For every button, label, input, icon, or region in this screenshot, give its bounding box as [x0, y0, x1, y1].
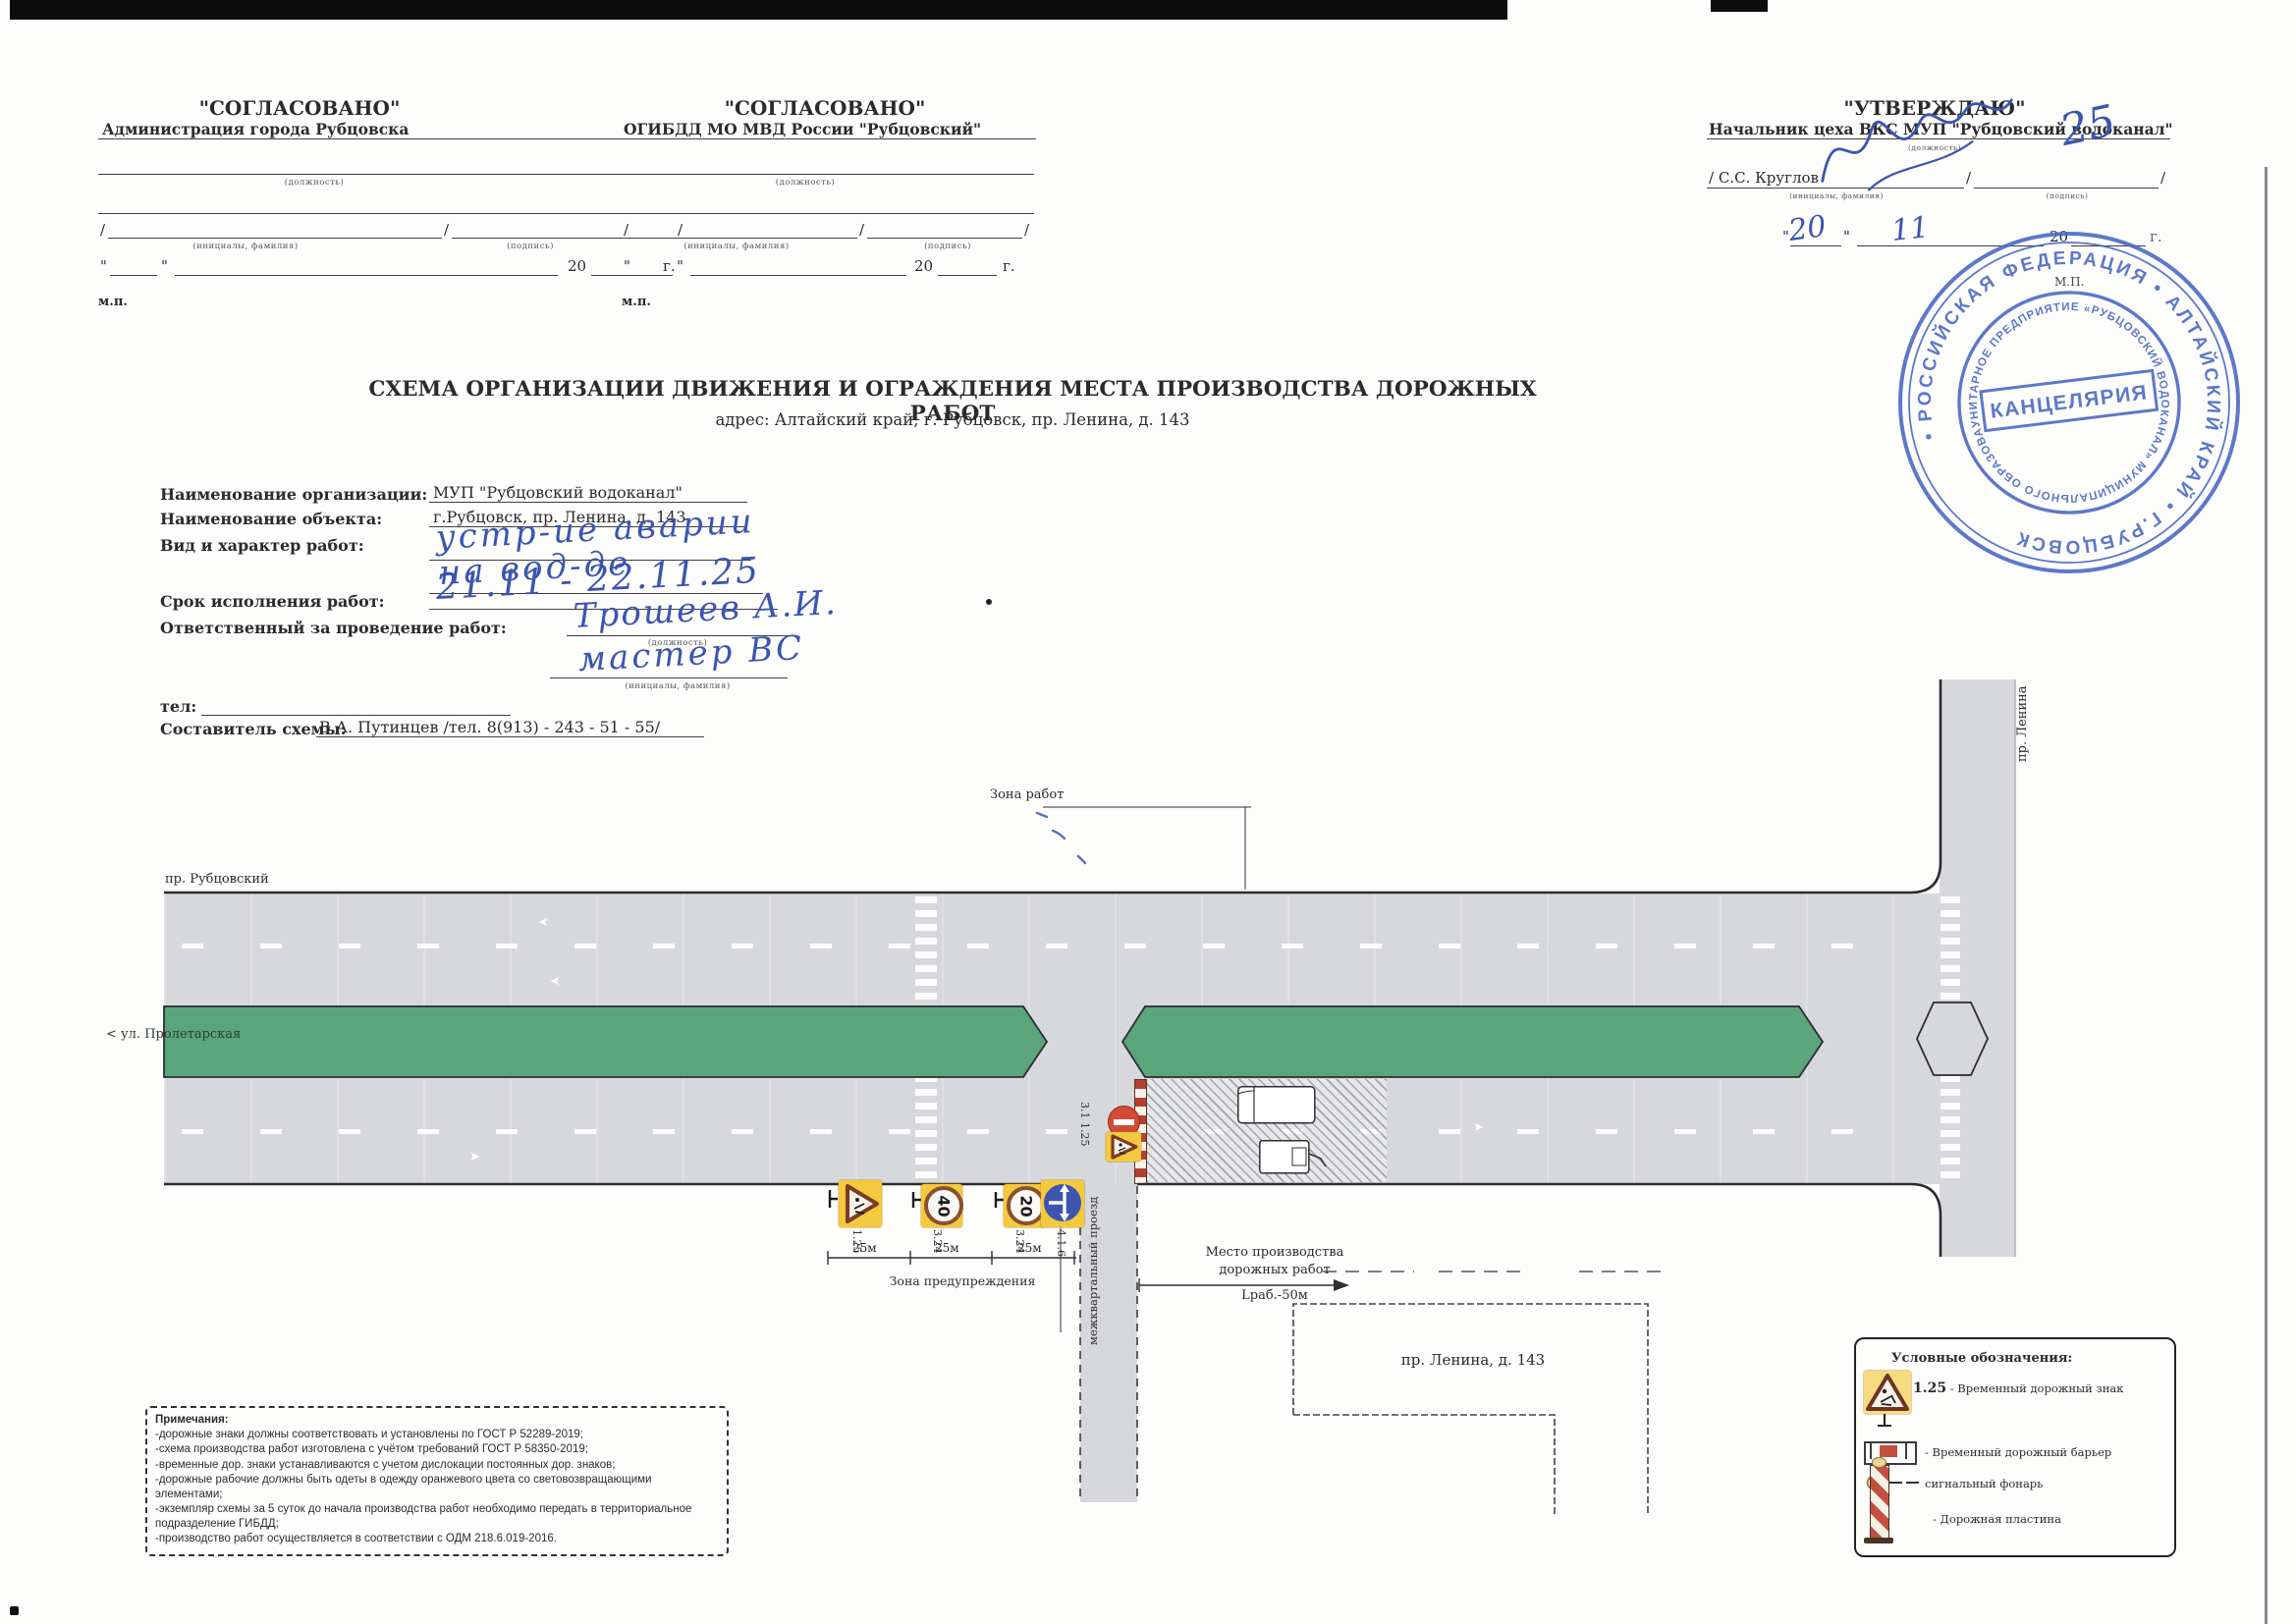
median-island-hexagon	[1917, 1002, 1988, 1075]
street-label-rubtsovsky: пр. Рубцовский	[165, 872, 269, 887]
pen-scribble	[1037, 813, 1085, 863]
dim-25m-3: 25м	[1017, 1241, 1042, 1255]
road-top-edge	[164, 679, 1941, 893]
roadworks-triangle-icon	[1106, 1132, 1141, 1162]
legend-item1-code: 1.25	[1913, 1380, 1946, 1396]
notes-line: -временные дор. знаки устанавливаются с …	[155, 1458, 719, 1473]
notes-line: -экземпляр схемы за 5 суток до начала пр…	[155, 1502, 719, 1532]
no-entry-bar	[1114, 1119, 1134, 1125]
workzone-label: Зона работ	[990, 787, 1064, 802]
notes-line: -дорожные рабочие должны быть одеты в од…	[155, 1473, 719, 1502]
legend-item1-text: - Временный дорожный знак	[1950, 1381, 2124, 1395]
street-label-proletarskaya: < ул. Пролетарская	[106, 1027, 241, 1042]
workplace-length-label: Lраб.-50м	[1196, 1288, 1353, 1303]
lane-arrow-east-1: ➤	[469, 1153, 480, 1163]
building-label: пр. Ленина, д. 143	[1375, 1351, 1571, 1369]
notes-line: -производство работ осуществляется в соо…	[155, 1532, 719, 1546]
legend-post-cap	[1872, 1457, 1886, 1468]
driveway-label: межквартальный проезд	[1086, 1190, 1100, 1345]
lane-arrow-west-2: ➤	[550, 975, 561, 985]
direction-sign-icon	[1041, 1180, 1084, 1227]
lane-arrow-west-1: ➤	[538, 916, 549, 926]
legend-item3-text: сигнальный фонарь	[1925, 1477, 2043, 1490]
workplace-label-line1: Место производства	[1196, 1245, 1353, 1260]
notes-line: -дорожные знаки должны соответствовать и…	[155, 1428, 719, 1442]
roadworks-triangle-icon	[839, 1180, 882, 1227]
dim-25m-1: 25м	[852, 1241, 877, 1255]
sign-road-ref-label: 3.1 1.25	[1078, 1102, 1091, 1146]
legend-item4-text: - Дорожная пластина	[1933, 1512, 2061, 1526]
warning-zone-label: Зона предупреждения	[884, 1273, 1041, 1288]
notes-box: Примечания: -дорожные знаки должны соотв…	[145, 1406, 729, 1556]
scanned-document-page: "СОГЛАСОВАНО" Администрация города Рубцо…	[0, 0, 2296, 1624]
legend-post-icon	[1870, 1465, 1889, 1540]
building-outline	[1293, 1304, 1648, 1517]
sign-speed-20: 20	[1007, 1186, 1046, 1225]
median-west	[164, 1006, 1047, 1077]
work-excavator	[1260, 1141, 1326, 1173]
notes-title: Примечания:	[155, 1413, 719, 1428]
workzone-leader	[1043, 807, 1251, 890]
speed-40-value: 40	[934, 1195, 953, 1217]
sign4-ref-label: 4.1.6	[1055, 1229, 1067, 1257]
work-truck	[1238, 1087, 1315, 1123]
sign-speed-40: 40	[924, 1186, 963, 1225]
legend-post-base	[1864, 1538, 1893, 1543]
speed-20-value: 20	[1016, 1195, 1035, 1217]
sign-roadworks-on-road	[1106, 1132, 1141, 1162]
legend-title: Условные обозначения:	[1891, 1351, 2072, 1366]
sign-roadworks-1-25	[839, 1180, 882, 1227]
lane-arrow-east-2: ➤	[1473, 1123, 1484, 1133]
street-label-lenina: пр. Ленина	[2015, 677, 2030, 762]
sign-direction-4-1-6-plate	[1041, 1180, 1084, 1227]
legend-roadworks-sign-icon	[1864, 1371, 1911, 1414]
legend-box: Условные обозначения: 1.25 - Временный д…	[1854, 1337, 2176, 1557]
legend-item2-text: - Временный дорожный барьер	[1925, 1445, 2111, 1459]
workplace-label-line2: дорожных работ	[1196, 1263, 1353, 1277]
notes-line: -схема производства работ изготовлена с …	[155, 1442, 719, 1457]
dim-25m-2: 25м	[935, 1241, 959, 1255]
legend-sign-post-base	[1878, 1425, 1891, 1427]
median-east	[1122, 1006, 1823, 1077]
